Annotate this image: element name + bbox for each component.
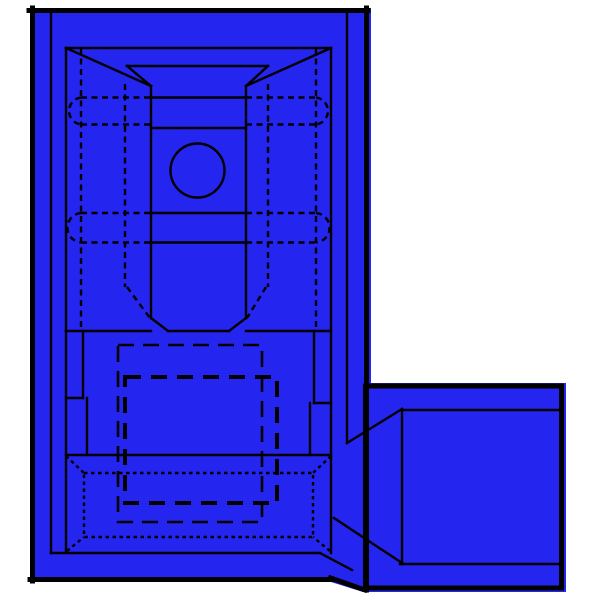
- diagram-canvas: [0, 0, 600, 600]
- body-fill-group: [30, 8, 566, 592]
- terminal-drawing-svg: [0, 0, 600, 600]
